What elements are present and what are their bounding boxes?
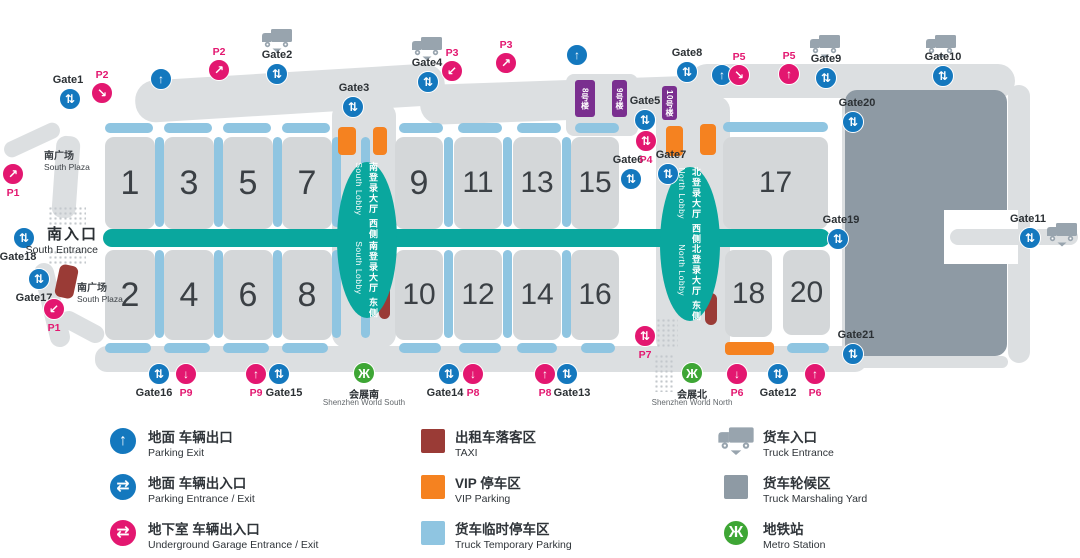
plaza-label-zh: 南广场: [77, 279, 123, 294]
legend-item-label: 地面 车辆出入口Parking Entrance / Exit: [148, 472, 255, 505]
parking-lot-label: P8: [467, 387, 480, 399]
gate-label: Gate13: [554, 387, 591, 399]
double-arrow-glyph: ⇅: [1025, 232, 1035, 244]
legend-truck-temp-swatch: [421, 521, 445, 545]
hall-13: 13: [513, 137, 561, 229]
hall-number: 16: [578, 278, 611, 312]
vip-parking-bar: [373, 127, 387, 155]
double-arrow-glyph: ⇅: [663, 168, 673, 180]
parking-exit-icon: ↑: [150, 68, 172, 90]
truck-entrance-icon: [1045, 222, 1079, 248]
hall-4: 4: [164, 250, 214, 340]
road-surface: [134, 63, 446, 124]
lobby-label-zh: 南登录大厅 东侧: [367, 241, 380, 319]
parking-lot-label: P3: [500, 39, 513, 51]
south-entrance-zh: 南入口: [18, 223, 98, 244]
metro-station-icon: Ж: [681, 362, 703, 384]
gate-icon: ⇅: [932, 65, 954, 87]
legend-item-label: 出租车落客区TAXI: [455, 426, 536, 459]
hall-number: 7: [298, 164, 317, 203]
hall-number: 2: [121, 276, 140, 315]
hall-number: 5: [239, 164, 258, 203]
double-arrow-glyph: ⇅: [833, 233, 843, 245]
truck-temporary-parking-bar: [214, 250, 223, 338]
gate-label: Gate4: [412, 57, 443, 69]
truck-temporary-parking-bar: [164, 123, 212, 133]
truck-temporary-parking-bar: [164, 343, 210, 353]
truck-temporary-parking-bar: [273, 137, 282, 227]
underground-parking-icon: ↘: [91, 82, 113, 104]
hall-number: 14: [520, 278, 553, 312]
hall-number: 11: [462, 166, 493, 200]
gate-label: Gate1: [53, 74, 84, 86]
parking-lot-label: P6: [731, 387, 744, 399]
truck-temporary-parking-bar: [503, 137, 512, 227]
underground-parking-icon: ⇅: [634, 325, 656, 347]
parking-stripes: [656, 318, 678, 348]
double-arrow-glyph: ⇅: [34, 273, 44, 285]
building-9: 9号楼: [612, 80, 627, 117]
legend-label-en: Parking Entrance / Exit: [148, 493, 255, 505]
truck-temporary-parking-bar: [105, 343, 151, 353]
truck-temporary-parking-bar: [581, 343, 615, 353]
underground-parking-icon: ↙: [441, 60, 463, 82]
underground-parking-icon: ↗: [495, 52, 517, 74]
double-arrow-glyph: ⇅: [938, 70, 948, 82]
arrow-glyph: ↑: [542, 368, 548, 380]
plaza-label-en: South Plaza: [44, 162, 90, 172]
underground-parking-icon: ↑: [534, 363, 556, 385]
hall-7: 7: [282, 137, 332, 229]
gate-icon: ⇅: [438, 363, 460, 385]
double-arrow-glyph: ⇅: [682, 66, 692, 78]
hall-number: 9: [410, 164, 429, 203]
gate-icon: ⇅: [268, 363, 290, 385]
legend-marshaling-swatch: [724, 475, 748, 499]
road-surface: [528, 86, 552, 114]
hall-1: 1: [105, 137, 155, 229]
arrow-glyph: ↑: [812, 368, 818, 380]
lobby-label-zh: 北登录大厅 东侧: [690, 244, 703, 322]
vip-parking-bar: [338, 127, 356, 155]
arrow-glyph: ↑: [786, 68, 792, 80]
legend-label-zh: 地面 车辆出口: [148, 426, 233, 446]
hall-11: 11: [454, 137, 502, 229]
truck-temporary-parking-bar: [105, 123, 153, 133]
arrow-glyph: ↗: [8, 168, 18, 180]
parking-lot-label: P2: [213, 46, 226, 58]
building-8: 8号楼: [575, 80, 595, 117]
gate-icon: ⇅: [815, 67, 837, 89]
double-arrow-glyph: ⇅: [848, 116, 858, 128]
legend-underground-garage-icon: ⇄: [108, 518, 138, 548]
legend-taxi-swatch: [421, 429, 445, 453]
underground-parking-icon: ↑: [245, 363, 267, 385]
gate-label: Gate8: [672, 47, 703, 59]
underground-parking-icon: ↓: [726, 363, 748, 385]
gate-icon: ⇅: [59, 88, 81, 110]
legend-label-en: Truck Marshaling Yard: [763, 493, 867, 505]
arrow-glyph: ↘: [97, 87, 107, 99]
building-label: 8号楼: [580, 88, 591, 110]
legend-label-en: Underground Garage Entrance / Exit: [148, 539, 318, 551]
taxi-zone: [54, 263, 79, 299]
truck-temporary-parking-bar: [444, 250, 453, 338]
gate-icon: ⇅: [842, 111, 864, 133]
truck-temporary-parking-bar: [459, 343, 501, 353]
legend-item-label: 货车入口Truck Entrance: [763, 426, 834, 459]
south-entrance-en: South Entrance: [18, 244, 98, 256]
lobby-label-zh: 北登录大厅 西侧: [690, 167, 703, 245]
double-arrow-glyph: ⇅: [626, 173, 636, 185]
metro-glyph: Ж: [729, 525, 743, 541]
gate-icon: ⇅: [266, 63, 288, 85]
underground-parking-icon: ↓: [462, 363, 484, 385]
double-arrow-glyph: ⇅: [640, 114, 650, 126]
parking-lot-label: P7: [639, 349, 652, 361]
up-arrow-glyph: ↑: [719, 69, 725, 81]
hall-number: 8: [298, 276, 317, 315]
building-label: 10号楼: [664, 90, 675, 117]
hall-number: 20: [790, 276, 823, 310]
parking-lot-label: P6: [809, 387, 822, 399]
gate-label: Gate9: [811, 53, 842, 65]
double-arrow-glyph: ⇅: [272, 68, 282, 80]
gate-icon: ⇅: [1019, 227, 1041, 249]
road-surface: [458, 86, 498, 114]
parking-stripes: [654, 354, 674, 392]
underground-parking-icon: ⇅: [635, 130, 657, 152]
underground-parking-icon: ↗: [2, 163, 24, 185]
truck-temporary-parking-bar: [517, 343, 557, 353]
legend: ↑地面 车辆出口Parking Exit⇄地面 车辆出入口Parking Ent…: [0, 415, 1080, 558]
lobby-label: South Lobby南登录大厅 西侧: [354, 162, 380, 240]
arrow-glyph: ↑: [119, 433, 127, 449]
legend-label-zh: 货车入口: [763, 426, 834, 446]
truck-temporary-parking-bar: [503, 250, 512, 338]
double-arrow-glyph: ⇅: [348, 101, 358, 113]
truck-temporary-parking-bar: [787, 343, 829, 353]
south-plaza-label: 南广场South Plaza: [77, 279, 123, 304]
hall-10: 10: [395, 250, 443, 340]
legend-label-zh: 出租车落客区: [455, 426, 536, 446]
plaza-label-en: South Plaza: [77, 294, 123, 304]
lobby-label: North Lobby北登录大厅 西侧: [677, 167, 703, 245]
lobby-label-en: North Lobby: [677, 167, 687, 245]
arrow-glyph: ↗: [501, 57, 511, 69]
gate-icon: ⇅: [827, 228, 849, 250]
truck-temporary-parking-bar: [399, 343, 441, 353]
double-arrow-glyph: ⇅: [848, 348, 858, 360]
arrow-glyph: ⇅: [641, 135, 651, 147]
metro-station-icon: Ж: [353, 362, 375, 384]
lobby-label: North Lobby北登录大厅 东侧: [677, 244, 703, 322]
truck-temporary-parking-bar: [575, 123, 619, 133]
legend-metro-icon: Ж: [722, 519, 750, 547]
up-arrow-glyph: ↑: [158, 73, 164, 85]
hall-8: 8: [282, 250, 332, 340]
double-arrow-glyph: ⇅: [65, 93, 75, 105]
hall-15: 15: [571, 137, 619, 229]
arrow-glyph: ↓: [470, 368, 476, 380]
hall-14: 14: [513, 250, 561, 340]
double-arrow-glyph: ⇅: [154, 368, 164, 380]
gate-label: Gate20: [839, 97, 876, 109]
truck-temporary-parking-bar: [223, 343, 269, 353]
gate-label: Gate12: [760, 387, 797, 399]
gate-icon: ⇅: [148, 363, 170, 385]
hall-6: 6: [223, 250, 273, 340]
lobby-label: South Lobby南登录大厅 东侧: [354, 241, 380, 319]
parking-lot-label: P1: [7, 187, 20, 199]
truck-glyph: [1045, 222, 1079, 248]
legend-label-en: Metro Station: [763, 539, 825, 551]
gate-label: Gate7: [656, 149, 687, 161]
truck-temporary-parking-bar: [517, 123, 561, 133]
hall-5: 5: [223, 137, 273, 229]
legend-parking-entrance-exit-icon: ⇄: [108, 472, 138, 502]
hall-number: 12: [461, 278, 494, 312]
venue-map: 13579111315172468101214161820South Lobby…: [0, 0, 1080, 558]
double-arrow-glyph: ⇅: [444, 368, 454, 380]
hall-18: 18: [725, 250, 772, 337]
legend-item-label: 地铁站Metro Station: [763, 518, 825, 551]
vip-parking-bar: [700, 124, 716, 155]
double-arrow-glyph: ⇅: [562, 368, 572, 380]
parking-lot-label: P5: [783, 50, 796, 62]
arrow-glyph: ⇄: [116, 479, 129, 495]
legend-item-label: 地面 车辆出口Parking Exit: [148, 426, 233, 459]
legend-parking-exit-icon: ↑: [108, 426, 138, 456]
gate-icon: ⇅: [676, 61, 698, 83]
gate-icon: ⇅: [342, 96, 364, 118]
building-label: 9号楼: [614, 88, 625, 110]
truck-temporary-parking-bar: [282, 123, 330, 133]
up-arrow-glyph: ↑: [574, 49, 580, 61]
gate-label: Gate5: [630, 95, 661, 107]
lobby-label-en: South Lobby: [354, 162, 364, 240]
hall-number: 18: [732, 277, 765, 311]
gate-icon: ⇅: [28, 268, 50, 290]
arrow-glyph: ⇅: [640, 330, 650, 342]
truck-temporary-parking-bar: [155, 250, 164, 338]
hall-number: 4: [180, 276, 199, 315]
lobby-label-en: South Lobby: [354, 241, 364, 319]
legend-label-zh: VIP 停车区: [455, 472, 521, 492]
truck-temporary-parking-bar: [273, 250, 282, 338]
arrow-glyph: ↓: [734, 368, 740, 380]
gate-label: Gate16: [136, 387, 173, 399]
parking-lot-label: P5: [733, 51, 746, 63]
gate-label: Gate21: [838, 329, 875, 341]
arrow-glyph: ↓: [183, 368, 189, 380]
hall-9: 9: [395, 137, 443, 229]
metro-glyph: Ж: [686, 367, 698, 380]
metro-glyph: Ж: [358, 367, 370, 380]
underground-parking-icon: ↑: [804, 363, 826, 385]
legend-label-zh: 货车临时停车区: [455, 518, 572, 538]
hall-3: 3: [164, 137, 214, 229]
legend-label-en: Parking Exit: [148, 447, 233, 459]
legend-item-label: VIP 停车区VIP Parking: [455, 472, 521, 505]
truck-temporary-parking-bar: [214, 137, 223, 227]
truck-glyph: [716, 426, 756, 457]
arrow-glyph: ↘: [734, 69, 744, 81]
gate-icon: ⇅: [634, 109, 656, 131]
underground-parking-icon: ↑: [778, 63, 800, 85]
parking-lot-label: P9: [250, 387, 263, 399]
south-entrance-label: 南入口South Entrance: [18, 223, 98, 256]
gate-label: Gate15: [266, 387, 303, 399]
double-arrow-glyph: ⇅: [821, 72, 831, 84]
lobby-label-zh: 南登录大厅 西侧: [367, 162, 380, 240]
truck-temporary-parking-bar: [562, 137, 571, 227]
plaza-label-zh: 南广场: [44, 147, 90, 162]
parking-lot-label: P4: [640, 154, 653, 166]
hall-number: 1: [121, 164, 140, 203]
hall-20: 20: [783, 250, 830, 335]
legend-item-label: 地下室 车辆出入口Underground Garage Entrance / E…: [148, 518, 318, 551]
truck-temporary-parking-bar: [444, 137, 453, 227]
legend-label-zh: 地面 车辆出入口: [148, 472, 255, 492]
central-concourse: [103, 229, 830, 247]
hall-number: 17: [759, 166, 792, 200]
gate-label: Gate10: [925, 51, 962, 63]
double-arrow-glyph: ⇅: [274, 368, 284, 380]
building-10: 10号楼: [662, 86, 677, 120]
truck-temporary-parking-bar: [399, 123, 443, 133]
metro-station-label-en: Shenzhen World North: [652, 398, 733, 407]
lobby-label-en: North Lobby: [677, 244, 687, 322]
gate-label: Gate3: [339, 82, 370, 94]
gate-icon: ⇅: [620, 168, 642, 190]
road-surface: [850, 356, 1008, 368]
truck-temporary-parking-bar: [723, 122, 828, 132]
legend-label-en: Truck Entrance: [763, 447, 834, 459]
legend-label-zh: 地铁站: [763, 518, 825, 538]
truck-temporary-parking-bar: [282, 343, 328, 353]
underground-parking-icon: ↓: [175, 363, 197, 385]
legend-truck-entrance-icon: [716, 426, 756, 457]
legend-label-zh: 地下室 车辆出入口: [148, 518, 318, 538]
hall-16: 16: [571, 250, 619, 340]
legend-vip-swatch: [421, 475, 445, 499]
hall-number: 13: [520, 166, 553, 200]
underground-parking-icon: ↙: [43, 298, 65, 320]
gate-label: Gate2: [262, 49, 293, 61]
gate-icon: ⇅: [842, 343, 864, 365]
double-arrow-glyph: ⇅: [773, 368, 783, 380]
arrow-glyph: ↗: [214, 64, 224, 76]
legend-label-en: VIP Parking: [455, 493, 521, 505]
hall-number: 15: [578, 166, 611, 200]
parking-exit-icon: ↑: [566, 44, 588, 66]
south-plaza-label: 南广场South Plaza: [44, 147, 90, 172]
gate-label: Gate11: [1010, 213, 1046, 225]
legend-item-label: 货车轮候区Truck Marshaling Yard: [763, 472, 867, 505]
legend-label-zh: 货车轮候区: [763, 472, 867, 492]
double-arrow-glyph: ⇅: [423, 76, 433, 88]
gate-icon: ⇅: [417, 71, 439, 93]
gate-icon: ⇅: [767, 363, 789, 385]
legend-label-en: Truck Temporary Parking: [455, 539, 572, 551]
legend-label-en: TAXI: [455, 447, 536, 459]
arrow-glyph: ↑: [253, 368, 259, 380]
metro-station-label-en: Shenzhen World South: [323, 398, 405, 407]
truck-temporary-parking-bar: [562, 250, 571, 338]
underground-parking-icon: ↘: [728, 64, 750, 86]
arrow-glyph: ⇄: [116, 525, 129, 541]
underground-parking-icon: ↗: [208, 59, 230, 81]
parking-lot-label: P9: [180, 387, 193, 399]
gate-label: Gate19: [823, 214, 860, 226]
arrow-glyph: ↙: [49, 303, 59, 315]
parking-lot-label: P8: [539, 387, 552, 399]
parking-lot-label: P1: [48, 322, 61, 334]
truck-temporary-parking-bar: [155, 137, 164, 227]
hall-number: 3: [180, 164, 199, 203]
truck-temporary-parking-bar: [458, 123, 502, 133]
parking-lot-label: P2: [96, 69, 109, 81]
vip-parking-bar: [725, 342, 774, 355]
arrow-glyph: ↙: [447, 65, 457, 77]
hall-12: 12: [454, 250, 502, 340]
hall-number: 10: [402, 278, 435, 312]
truck-temporary-parking-bar: [223, 123, 271, 133]
hall-17: 17: [723, 137, 828, 229]
gate-icon: ⇅: [556, 363, 578, 385]
legend-item-label: 货车临时停车区Truck Temporary Parking: [455, 518, 572, 551]
hall-number: 6: [239, 276, 258, 315]
gate-label: Gate14: [427, 387, 464, 399]
parking-lot-label: P3: [446, 47, 459, 59]
gate-icon: ⇅: [657, 163, 679, 185]
